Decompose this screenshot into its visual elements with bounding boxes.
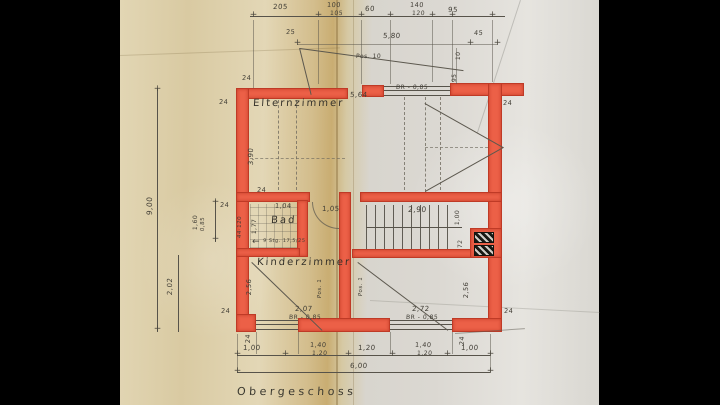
wall-thickness-label: 24 [257,187,267,194]
pencil-diagonal [300,48,464,71]
wall-right-outer [488,83,502,332]
dim-tick: + [443,350,452,359]
dim-tick: + [428,11,437,20]
chimney-flue [474,232,494,243]
dim-tick: + [493,39,502,48]
dim-label: 1,00 [455,210,461,226]
window-width-label: 5,64 [350,92,368,99]
dim-tick: + [153,325,162,334]
dim-tick: + [233,350,242,359]
pos-label: Pos. 1 [359,277,365,297]
window-height-label: 1,60 [193,215,199,231]
page-title: Obergeschoss [237,386,357,397]
room-label-elternzimmer: Elternzimmer [253,99,345,109]
window-sill-label: BR - 0,85 [406,315,439,321]
witness-line [318,20,319,84]
fold-line [353,0,354,405]
dim-label: 105 [330,11,343,17]
chimney-flue [474,245,494,256]
roof-kink-line [296,100,297,190]
witness-line [432,20,433,82]
dim-tick: + [153,85,162,94]
dim-tick: + [281,350,290,359]
dim-label: 1,20 [358,345,376,352]
roof-kink-line [425,97,426,192]
dim-tick: + [386,11,395,20]
dim-label: 1,05 [322,206,340,213]
dim-label: 9,00 [146,196,154,215]
window-note-label: 44·120 [238,216,244,239]
window-sill-label: BR - 0,85 [289,315,322,321]
dim-label: 1,00 [243,345,261,352]
pos-label: Pos. 10 [356,54,382,60]
dim-tick: + [486,350,495,359]
witness-line [298,332,299,354]
dimension-line-top [250,16,505,17]
screenshot-stage: + + + + + + + + + + + + + + + + + + + + … [0,0,720,405]
dim-label: 205 [273,4,288,11]
dim-tick: + [211,235,220,244]
room-label-kinderzimmer: Kinderzimmer [257,258,352,268]
dim-tick: + [388,350,397,359]
dim-tick: + [488,11,497,20]
dim-label: 140 [410,2,424,9]
wall-thickness-label: 24 [220,202,230,209]
wall-thickness-label: 24 [504,308,514,315]
window-sill-label: BR - 0,85 [396,85,429,91]
dim-label: 1,04 [275,203,292,210]
dim-tick: + [344,350,353,359]
dim-label: 10 [456,51,462,60]
witness-line [253,20,254,88]
dim-tick: + [314,11,323,20]
witness-line [492,20,493,82]
dim-label: 2,02 [167,277,174,295]
window-bottom-left [256,320,298,330]
pos-label: Pos. 1 [318,279,324,299]
wall-bottom-left-corner [236,314,256,332]
dim-tick: + [486,367,495,376]
wall-middle-right [360,192,502,202]
wall-left-outer [236,88,249,332]
wall-thickness-label: 24 [503,100,513,107]
dim-label: 3,90 [248,147,255,165]
roof-kink-line [404,97,405,190]
dim-label: 95 [448,7,458,14]
wall-thickness-label: 24 [219,99,229,106]
dimension-line-left [157,88,158,332]
dim-label: 5,80 [383,33,401,40]
window-bottom-left-midline [256,324,298,325]
dim-label: 100 [327,2,341,9]
witness-line [452,332,453,354]
stair-direction-arrow: ← [252,238,260,247]
dim-label: 2,56 [463,282,470,299]
dim-tick: + [249,11,258,20]
wall-thickness-label: 24 [245,334,252,344]
stair-length-label: 2,90 [408,206,427,214]
dim-label: 120 [412,11,425,17]
dimension-line-bottom [237,355,490,356]
dim-label-total: 6,00 [350,363,368,370]
crease-line [370,300,600,313]
stair-note: 9 Stg. 17,5/25 [263,239,306,244]
window-width-label: 2,72 [412,306,430,313]
wall-thickness-label: 24 [221,308,231,315]
witness-line [390,20,391,84]
dimension-line-total [237,372,490,373]
dim-label: 1,77 [252,219,258,235]
window-sill-label: 0,85 [201,217,207,232]
dim-tick: + [293,39,302,48]
dim-label: 1,20 [312,351,328,357]
dim-label: 72 [458,239,464,248]
window-width-label: 2,07 [295,306,313,313]
dim-label: 1,40 [310,342,327,349]
roof-kink-line [250,158,345,159]
roof-kink-line [278,100,279,190]
room-label-bad: Bad [271,216,297,226]
stair-walk-line [366,227,462,228]
dim-label: 60 [365,6,375,13]
roof-kink-line [425,147,488,148]
dim-label: 25 [286,29,296,36]
witness-line [361,20,362,84]
dimension-line-left3 [178,255,179,332]
dim-label: 2,56 [246,279,253,296]
wall-top-right [450,83,524,96]
dim-tick: + [233,367,242,376]
dim-label: 1,20 [417,351,433,357]
dim-label: 1,00 [461,345,479,352]
dim-label: 95 [452,73,458,82]
dim-tick: + [211,198,220,207]
dim-label: 1,40 [415,342,432,349]
dim-label: 45 [474,30,484,37]
wall-bath-bottom [236,248,300,257]
scanned-floor-plan-paper: + + + + + + + + + + + + + + + + + + + + … [120,0,599,405]
wall-thickness-label: 24 [242,75,252,82]
dim-tick: + [466,39,475,48]
